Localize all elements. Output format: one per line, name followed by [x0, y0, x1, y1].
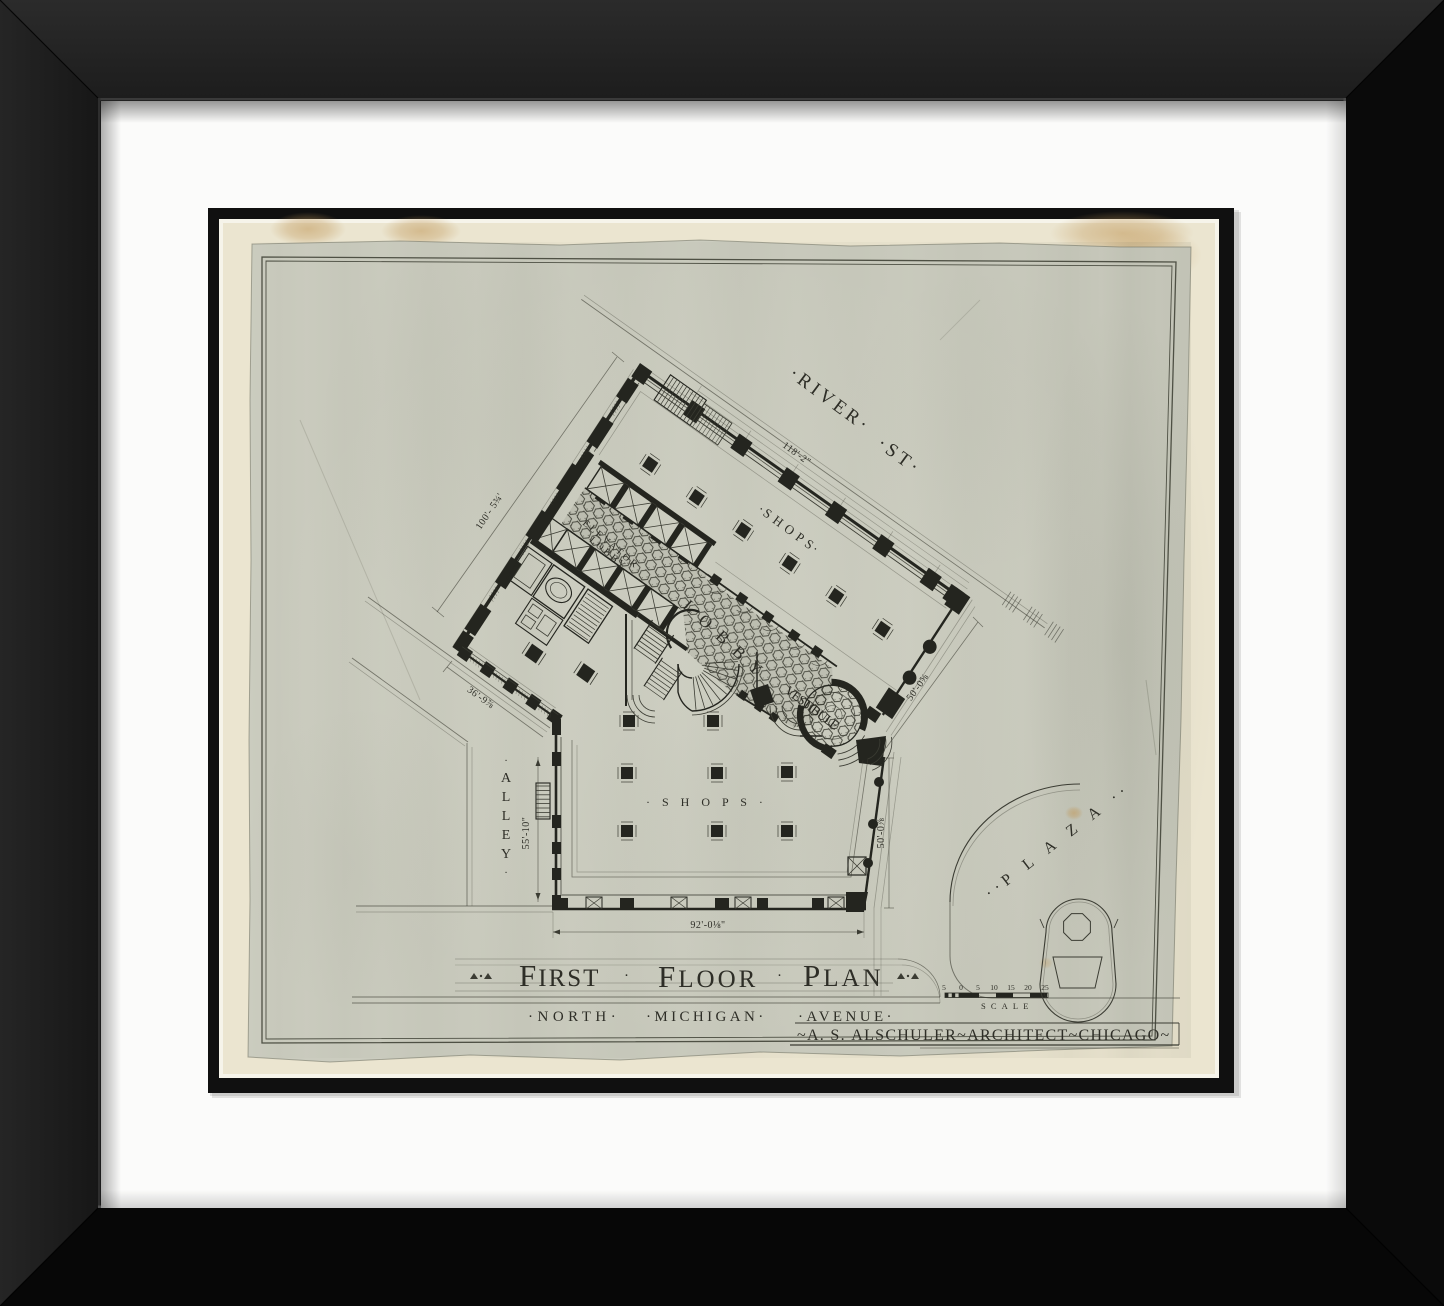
svg-text:E: E: [502, 828, 511, 843]
svg-text:~A. S. ALSCHULER~ARCHITECT~CHI: ~A. S. ALSCHULER~ARCHITECT~CHICAGO~: [797, 1027, 1170, 1044]
svg-text:S C A L E: S C A L E: [981, 1001, 1030, 1011]
svg-text:·NORTH·: ·NORTH·: [528, 1009, 620, 1025]
svg-text:5: 5: [976, 983, 980, 992]
svg-text:L: L: [502, 809, 511, 824]
svg-text:·: ·: [777, 968, 782, 984]
svg-text:·: ·: [504, 756, 507, 767]
svg-text:25: 25: [1041, 983, 1049, 992]
svg-text:· S H O P S ·: · S H O P S ·: [646, 795, 766, 809]
svg-text:Y: Y: [501, 847, 511, 862]
svg-text:L: L: [502, 790, 511, 805]
svg-text:·: ·: [624, 968, 629, 984]
svg-text:92'-0⅛": 92'-0⅛": [690, 920, 725, 931]
svg-text:A: A: [501, 771, 512, 786]
svg-text:10: 10: [990, 983, 998, 992]
svg-text:5: 5: [942, 983, 946, 992]
svg-text:·MICHIGAN·: ·MICHIGAN·: [646, 1009, 767, 1025]
svg-text:20: 20: [1024, 983, 1032, 992]
svg-text:·: ·: [504, 868, 507, 879]
svg-text:0: 0: [959, 983, 963, 992]
svg-text:15: 15: [1007, 983, 1015, 992]
svg-text:55'-10": 55'-10": [521, 817, 532, 850]
